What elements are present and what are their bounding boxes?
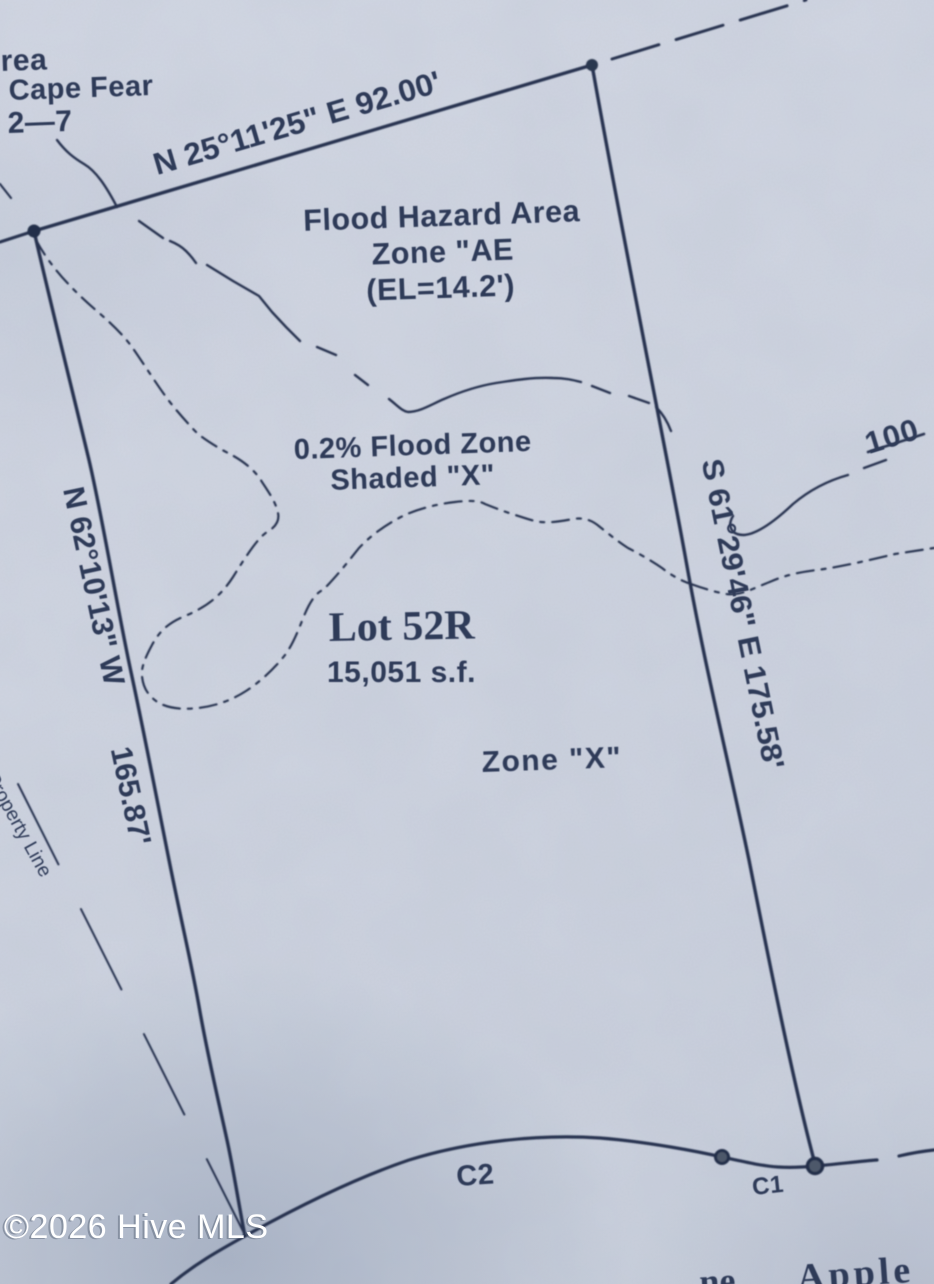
svg-text:C2: C2 [455,1158,495,1193]
svg-text:15,051 s.f.: 15,051 s.f. [327,656,476,689]
svg-text:2—7: 2—7 [7,105,73,140]
svg-text:Cape Fear: Cape Fear [8,70,154,107]
svg-text:rea: rea [0,43,48,78]
svg-text:Lot 52R: Lot 52R [328,602,475,651]
svg-text:Zone "X": Zone "X" [481,741,623,779]
svg-text:(EL=14.2'): (EL=14.2') [366,268,516,307]
svg-text:Shaded "X": Shaded "X" [330,459,496,497]
svg-text:©2026 Hive MLS: ©2026 Hive MLS [4,1208,269,1246]
svg-text:C1: C1 [751,1171,785,1201]
svg-text:Zone "AE: Zone "AE [371,233,514,272]
svg-text:ne: ne [698,1260,736,1284]
